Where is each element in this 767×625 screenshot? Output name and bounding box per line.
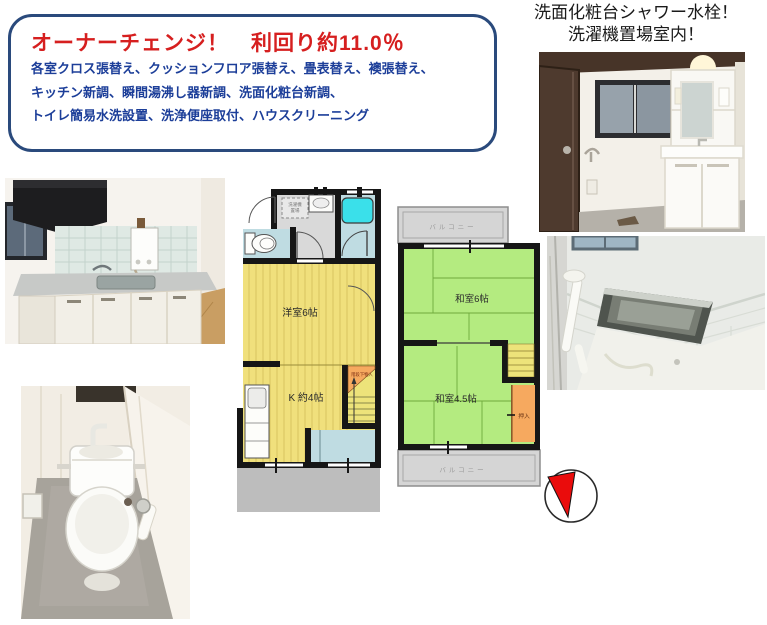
stairs-symbol: 階段下物入 [342,365,375,430]
bathroom-photo [547,236,765,390]
info-title: オーナーチェンジ！ 利回り約11.0％ [31,27,474,57]
compass-icon [543,467,601,525]
svg-text:置場: 置場 [291,207,300,214]
svg-text:洋室6帖: 洋室6帖 [282,306,318,319]
water-heater [131,228,158,270]
vanity-unit [661,55,743,228]
toilet-paper-holder [23,494,42,518]
svg-text:和室6帖: 和室6帖 [455,293,489,305]
svg-text:階段下物入: 階段下物入 [351,371,373,378]
svg-text:和室4.5帖: 和室4.5帖 [435,393,477,405]
svg-text:K 約4帖: K 約4帖 [288,391,323,404]
info-line-2: キッチン新調、瞬間湯沸し器新調、洗面化粧台新調、 [31,81,474,105]
laundry-space-symbol: 洗濯機 置場 [282,198,308,218]
floorplan-1f: 洗濯機 置場 洋室6帖 [230,185,382,517]
renovation-info-box: オーナーチェンジ！ 利回り約11.0％ 各室クロス張替え、クッションフロア張替え… [8,14,497,152]
svg-text:バルコニー: バルコニー [439,466,486,474]
svg-text:押入: 押入 [518,412,530,420]
headline: 洗面化粧台シャワー水栓！ 洗濯機置場室内！ [508,2,764,46]
floorplan-2f: バルコニー バルコニー 和室6帖 和室4.5帖 [394,205,544,489]
kitchen-photo [5,178,225,344]
entrance-area [311,430,375,462]
balcony-bottom: バルコニー [398,450,540,486]
toilet-photo [21,386,190,619]
bathtub-symbol [342,198,373,223]
kitchen-unit-symbol [245,385,269,458]
headline-line-2: 洗濯機置場室内！ [508,24,764,46]
headline-line-1: 洗面化粧台シャワー水栓！ [508,2,764,24]
info-line-3: トイレ簡易水洗設置、洗浄便座取付、ハウスクリーニング [31,104,474,128]
svg-text:バルコニー: バルコニー [429,223,476,231]
stairs-symbol-2f [502,340,540,383]
info-line-1: 各室クロス張替え、クッションフロア張替え、畳表替え、襖張替え、 [31,57,474,81]
balcony-top: バルコニー [398,207,508,243]
svg-text:洗濯機: 洗濯機 [288,201,302,208]
closet-symbol: 押入 [507,385,535,442]
flyer-canvas: オーナーチェンジ！ 利回り約11.0％ 各室クロス張替え、クッションフロア張替え… [0,0,767,625]
vanity-photo [539,52,745,232]
toilet-symbol [245,233,276,254]
